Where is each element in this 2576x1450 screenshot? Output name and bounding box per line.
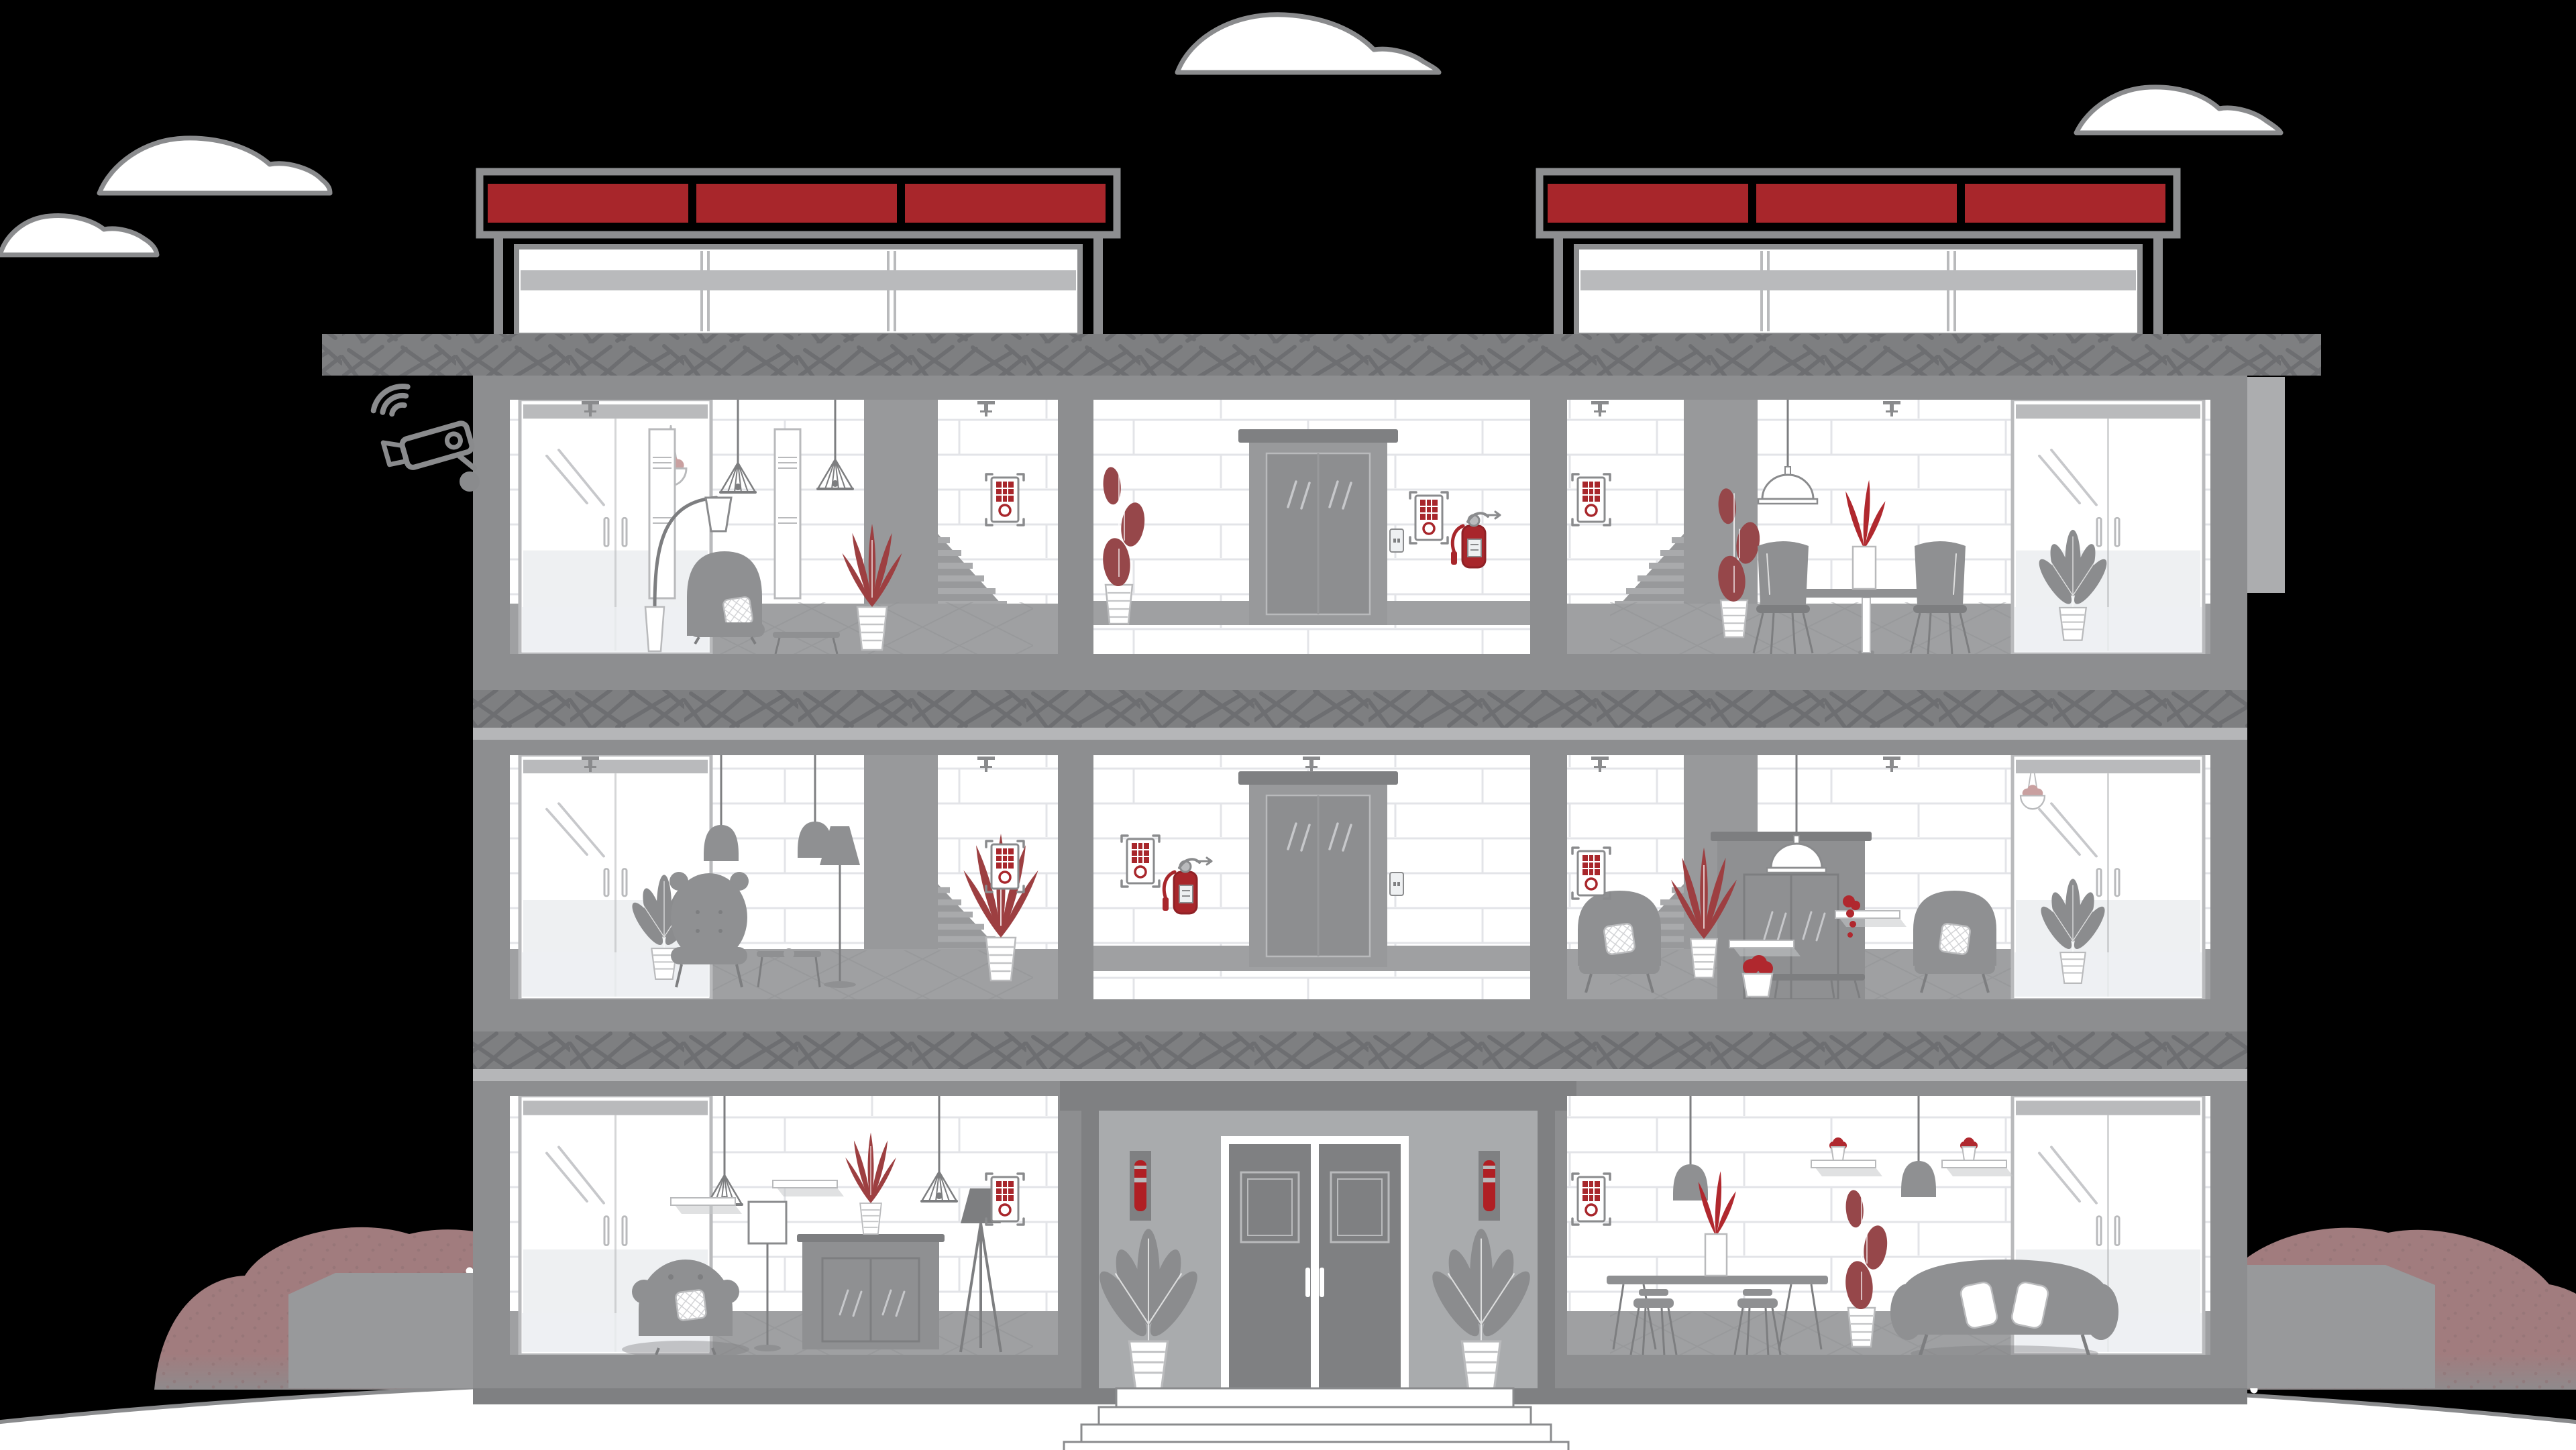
wall-shelf: [1835, 911, 1907, 927]
step: [1099, 1407, 1531, 1425]
glass-cabinet: [797, 1234, 945, 1349]
second-floor: [510, 755, 2210, 1002]
plant-pot: [860, 1203, 881, 1234]
plant-pot: [857, 607, 887, 650]
floor-slab: [473, 1031, 2247, 1081]
elevator-call-button: [1390, 873, 1403, 895]
elevator: [1238, 771, 1398, 967]
ground-floor-right-room: [1567, 1096, 2210, 1361]
fire-alarm-icon: [1122, 836, 1159, 887]
cloud: [1177, 15, 1439, 72]
wall-panel: [775, 429, 800, 598]
door-handle: [1305, 1268, 1310, 1297]
cloud: [0, 216, 157, 255]
entrance: [1060, 1081, 1576, 1388]
fire-alarm-icon: [1572, 1174, 1610, 1225]
third-floor-elevator-lobby: [1093, 400, 1530, 654]
side-wall-left: [288, 1273, 473, 1388]
wall-shelf: [1729, 940, 1801, 956]
roof-slab: [322, 334, 2321, 376]
entrance-steps: [1064, 1388, 1568, 1450]
step: [1081, 1425, 1551, 1442]
elevator-call-button: [1390, 529, 1403, 552]
cloud: [2076, 87, 2281, 133]
third-floor: [510, 400, 2210, 655]
third-floor-right-room: [1567, 400, 2210, 655]
fire-alarm-icon: [1572, 474, 1610, 525]
illustration-stage: [0, 0, 2576, 1450]
fire-alarm-icon: [1410, 492, 1448, 543]
pillow: [1603, 923, 1635, 954]
fire-alarm-icon: [986, 841, 1024, 892]
plant-pot: [1690, 939, 1717, 978]
fire-alarm-icon: [986, 1174, 1024, 1225]
door-handle: [1320, 1268, 1324, 1297]
ground-floor: [510, 1081, 2210, 1388]
second-floor-elevator-lobby: [1093, 755, 1530, 999]
step: [1064, 1442, 1568, 1450]
cctv-camera-icon: [374, 386, 480, 492]
wall-shelf: [773, 1180, 844, 1196]
wifi-signal-icon: [374, 386, 408, 414]
pillow: [1939, 923, 1970, 954]
pillow: [676, 1290, 707, 1321]
cornice: [1060, 1081, 1576, 1111]
wall-shelf: [671, 1198, 742, 1214]
red-wall-lamp: [1130, 1151, 1151, 1221]
building-cross-section: [0, 0, 2576, 1450]
ground-floor-left-room: [510, 1096, 1058, 1358]
pillow: [722, 596, 753, 627]
wall-shelf: [1942, 1160, 2013, 1176]
second-floor-right-room: [1567, 755, 2210, 1002]
armchair: [687, 551, 765, 644]
fire-alarm-icon: [1572, 848, 1610, 899]
wall-panel: [649, 429, 675, 598]
pilaster: [1081, 1111, 1099, 1388]
wall-shelf: [1811, 1160, 1882, 1176]
floor-slab: [473, 690, 2247, 740]
cloud: [99, 138, 330, 193]
rooftop-solar-canopy-left: [480, 172, 1117, 341]
second-floor-left-room: [510, 755, 1058, 999]
pilaster: [1538, 1111, 1555, 1388]
side-wall-right: [2247, 1265, 2435, 1388]
third-floor-left-room: [510, 400, 1058, 654]
right-side-wall-strip: [2247, 377, 2285, 593]
red-wall-lamp: [1479, 1151, 1500, 1221]
plant-pot: [986, 938, 1016, 981]
rooftop-solar-canopy-right: [1540, 172, 2177, 341]
step: [1116, 1388, 1513, 1407]
fire-alarm-icon: [986, 474, 1024, 525]
elevator: [1238, 429, 1398, 625]
